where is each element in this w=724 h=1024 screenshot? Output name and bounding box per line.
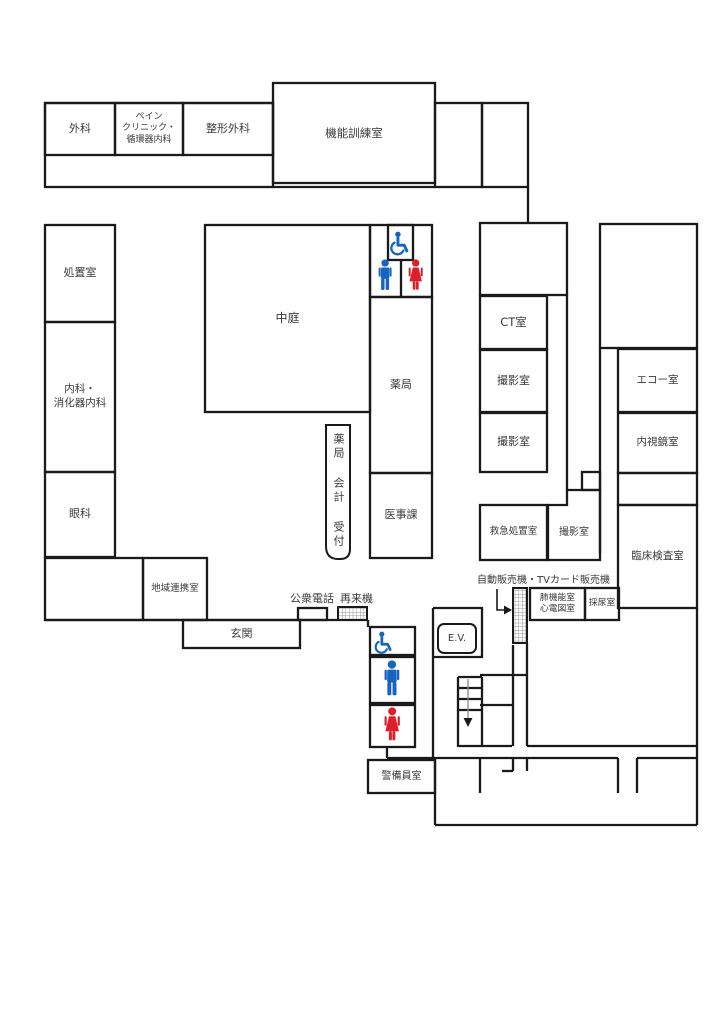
accessible-toilet-icon bbox=[391, 232, 406, 255]
male-toilet-icon bbox=[385, 660, 400, 695]
female-toilet-icon bbox=[385, 707, 400, 740]
vending-machine-block bbox=[513, 588, 527, 643]
reception-machine-block bbox=[338, 607, 367, 620]
stairs-down-arrow-icon bbox=[464, 679, 473, 727]
floor-plan-drawing bbox=[0, 0, 724, 1024]
accessible-toilet-icon bbox=[376, 632, 390, 653]
female-toilet-icon bbox=[409, 259, 423, 289]
vending-arrow-icon bbox=[497, 589, 512, 615]
walls bbox=[45, 83, 697, 825]
male-toilet-icon bbox=[379, 259, 392, 290]
hospital-floor-plan: 外科 ペイン クリニック・ 循環器内科 整形外科 機能訓練室 処置室 内科・ 消… bbox=[0, 0, 724, 1024]
